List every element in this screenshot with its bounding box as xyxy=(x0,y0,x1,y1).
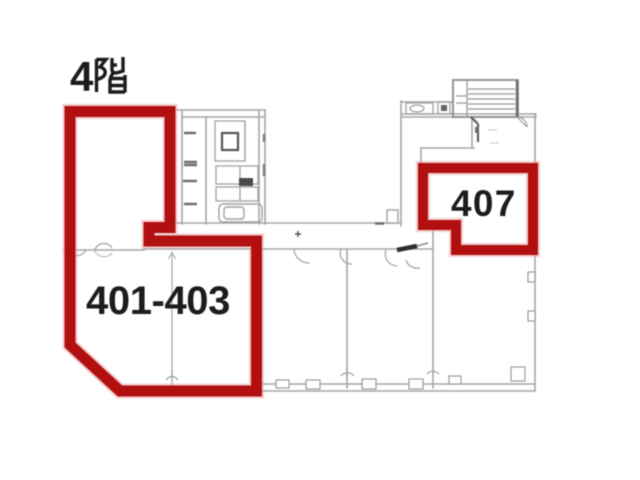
svg-text:401-403: 401-403 xyxy=(86,279,230,323)
svg-text:407: 407 xyxy=(451,183,517,224)
svg-text:4: 4 xyxy=(70,53,94,100)
